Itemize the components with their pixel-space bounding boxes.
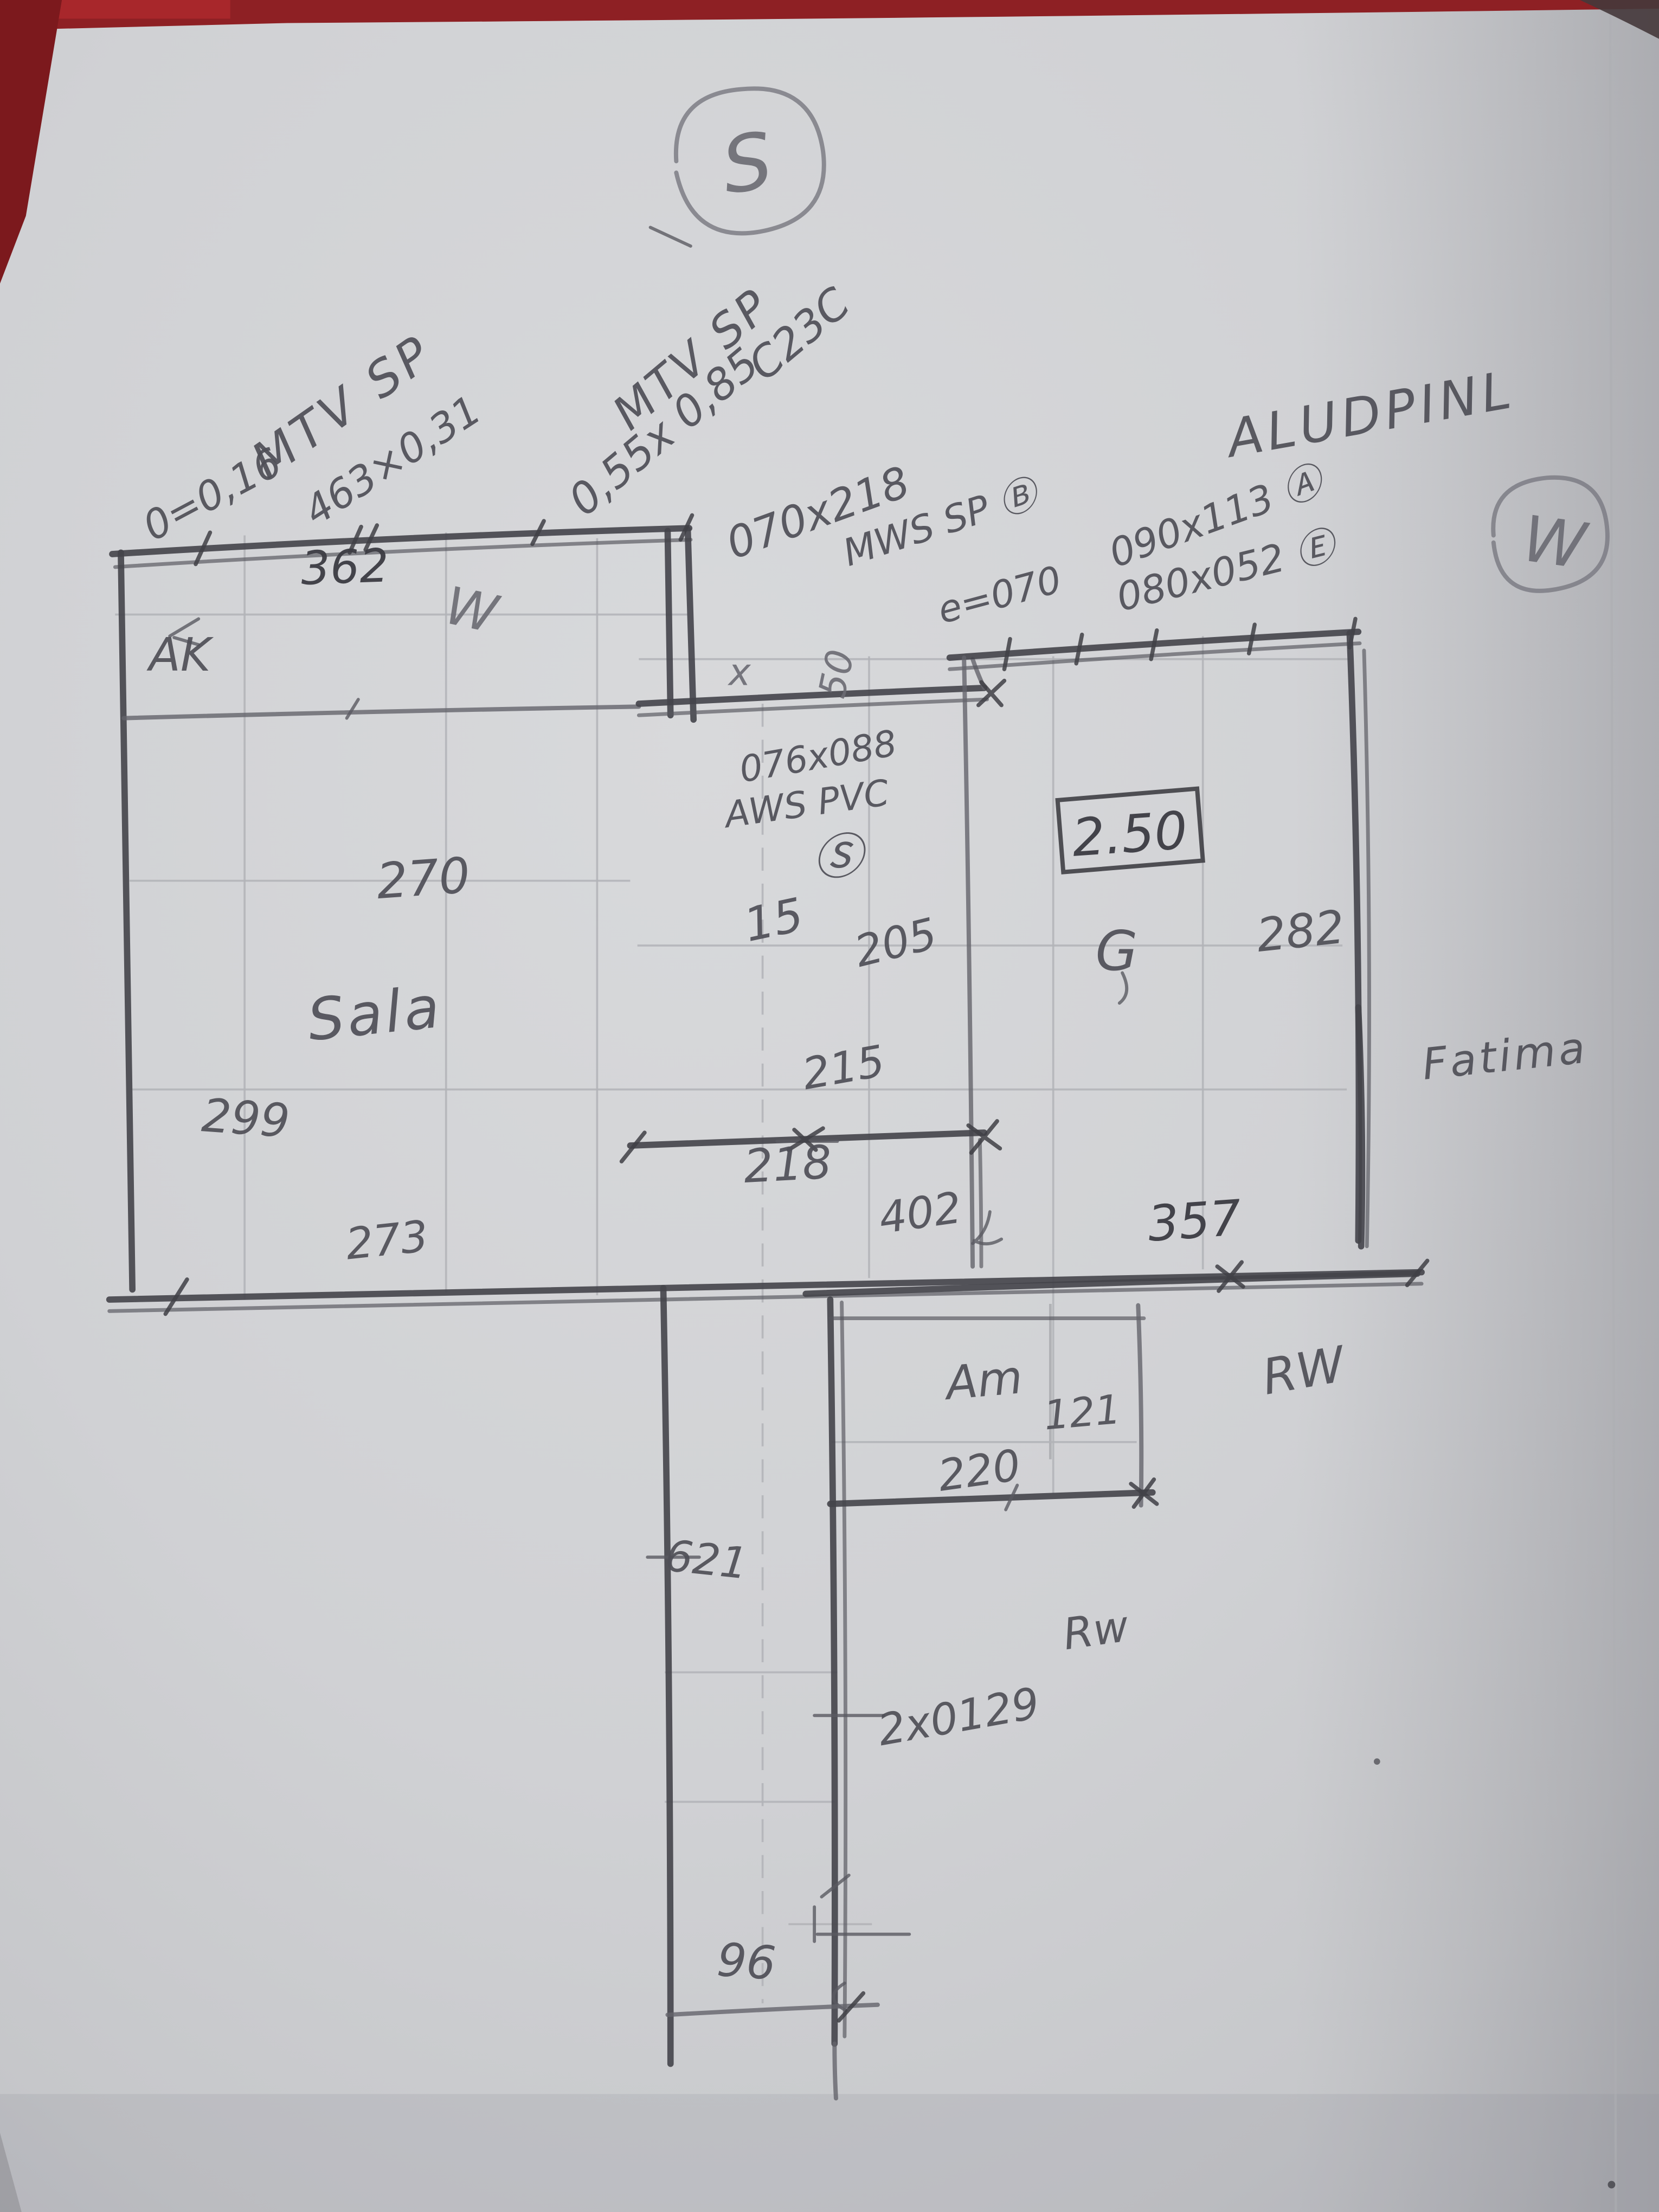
dim-right-width: 282 [1254,901,1347,963]
dim-mid-bottom: 218 [742,1136,833,1194]
pencil-dot-2 [1608,2181,1616,2189]
dim-am-height: 121 [1042,1386,1123,1439]
dim-boxed-height: 2.50 [1070,800,1189,869]
dim-sala-bottom: 273 [343,1211,430,1269]
photographed-sketch: S W MTV SP 0=0,16 463×0,31 MTV SP 0,55x … [0,0,1659,2212]
label-room-sala: Sala [305,973,446,1054]
dim-right-bottom: 357 [1146,1189,1243,1253]
label-room-g: G [1095,919,1137,983]
paper-right-shadow [1295,0,1659,2212]
dim-sala-height: 299 [200,1089,292,1148]
label-tick-x: x [728,651,751,695]
dim-bottom-width: 96 [715,1933,777,1991]
dim-top-width: 362 [300,539,389,596]
compass-west-letter: W [1518,502,1593,584]
floor-plan-svg: S W MTV SP 0=0,16 463×0,31 MTV SP 0,55x … [0,0,1659,2212]
dim-corridor-height: 621 [663,1531,750,1589]
dim-sala-width: 270 [375,847,472,910]
label-rw-lower: Rw [1060,1600,1132,1660]
label-room-ak: AK [146,628,214,682]
label-room-am: Am [941,1351,1025,1411]
label-small-window-mark: Ⓢ [813,828,868,885]
paper-bottom-shadow [0,2094,1659,2212]
pencil-dot [1374,1758,1380,1765]
